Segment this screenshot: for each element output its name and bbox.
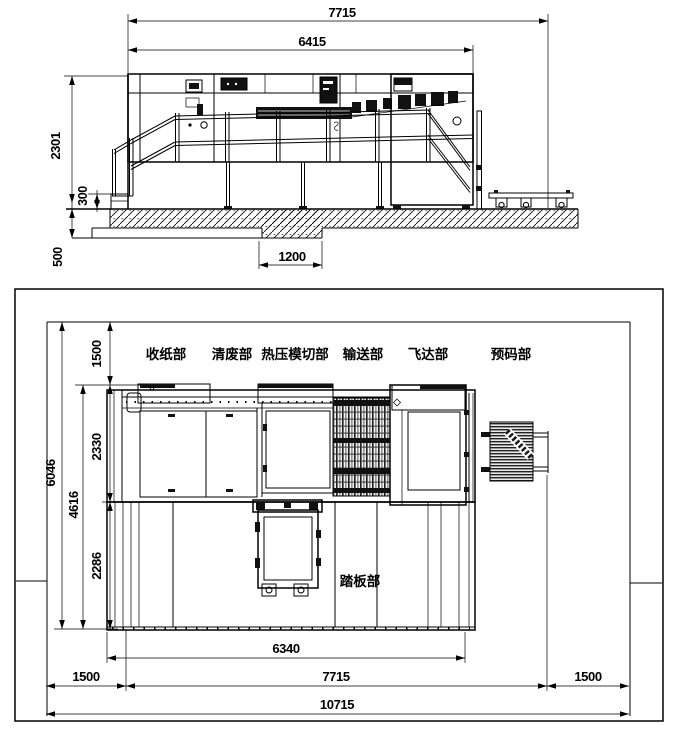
- section-labels: 收纸部 清废部 热压模切部 输送部 飞达部 预码部: [146, 346, 532, 362]
- dim-plan-platform-width: 6340: [272, 641, 299, 656]
- dim-plan-machine-width: 7715: [322, 669, 349, 684]
- pedal-cart: [253, 500, 322, 596]
- dim-elev-base-height: 300: [76, 186, 90, 206]
- machine-platform: [107, 502, 475, 630]
- label-feeder-section: 飞达部: [408, 346, 449, 362]
- dim-elev-height: 2301: [48, 132, 63, 159]
- dim-plan-platform-depth: 2286: [89, 552, 104, 579]
- transfer-mechanism: [352, 91, 466, 117]
- dim-elev-machine-length: 6415: [298, 34, 325, 49]
- plan-outer-border: [15, 289, 663, 721]
- right-guard-post: [477, 111, 482, 209]
- label-delivery-section: 收纸部: [146, 346, 187, 362]
- dim-plan-machine-total-depth: 4616: [66, 491, 81, 518]
- label-stripping-section: 清废部: [212, 346, 253, 362]
- dim-plan-overall-depth: 6046: [43, 459, 58, 486]
- electric-cabinet-icon: [320, 77, 337, 103]
- elevation-view: 7715 6415 2301 300 500 1200: [48, 5, 578, 269]
- plan-dimensions-bottom: 6340 1500 7715 1500 10715: [46, 475, 629, 717]
- feeder-plan: [390, 385, 473, 505]
- conveyor-grid: [333, 398, 390, 496]
- dim-plan-right-clearance: 1500: [574, 669, 601, 684]
- dim-elev-foundation-width: 1200: [278, 249, 305, 264]
- machine-layout-drawing: 7715 6415 2301 300 500 1200: [0, 0, 679, 729]
- floor-section: [66, 209, 578, 238]
- pallet-truck: [489, 190, 573, 208]
- dim-plan-left-clearance: 1500: [72, 669, 99, 684]
- label-pedal-section: 踏板部: [340, 573, 381, 589]
- dim-elev-overall-width: 7715: [328, 5, 355, 20]
- plan-dimensions-left: 6046 4616 1500 2330 2286: [43, 322, 140, 629]
- paper-stack: [481, 422, 548, 481]
- dim-elev-foundation-depth: 500: [51, 247, 65, 267]
- machine-legs: [224, 162, 384, 209]
- machine-plan: [107, 384, 475, 505]
- dim-plan-rear-clearance: 1500: [89, 340, 104, 367]
- label-diecutting-section: 热压模切部: [261, 346, 329, 362]
- operator-panel-icon: [221, 78, 247, 90]
- dim-plan-overall-width: 10715: [320, 697, 354, 712]
- machine-elevation-body: [111, 74, 473, 209]
- plan-view: 收纸部 清废部 热压模切部 输送部 飞达部 预码部: [15, 289, 663, 721]
- label-prestack-section: 预码部: [491, 346, 532, 362]
- control-screen-icon: [186, 80, 202, 92]
- guard-railing: [112, 108, 482, 209]
- drawing-canvas: 7715 6415 2301 300 500 1200: [0, 0, 679, 729]
- dim-plan-machine-depth: 2330: [89, 433, 104, 460]
- label-conveying-section: 输送部: [343, 346, 384, 362]
